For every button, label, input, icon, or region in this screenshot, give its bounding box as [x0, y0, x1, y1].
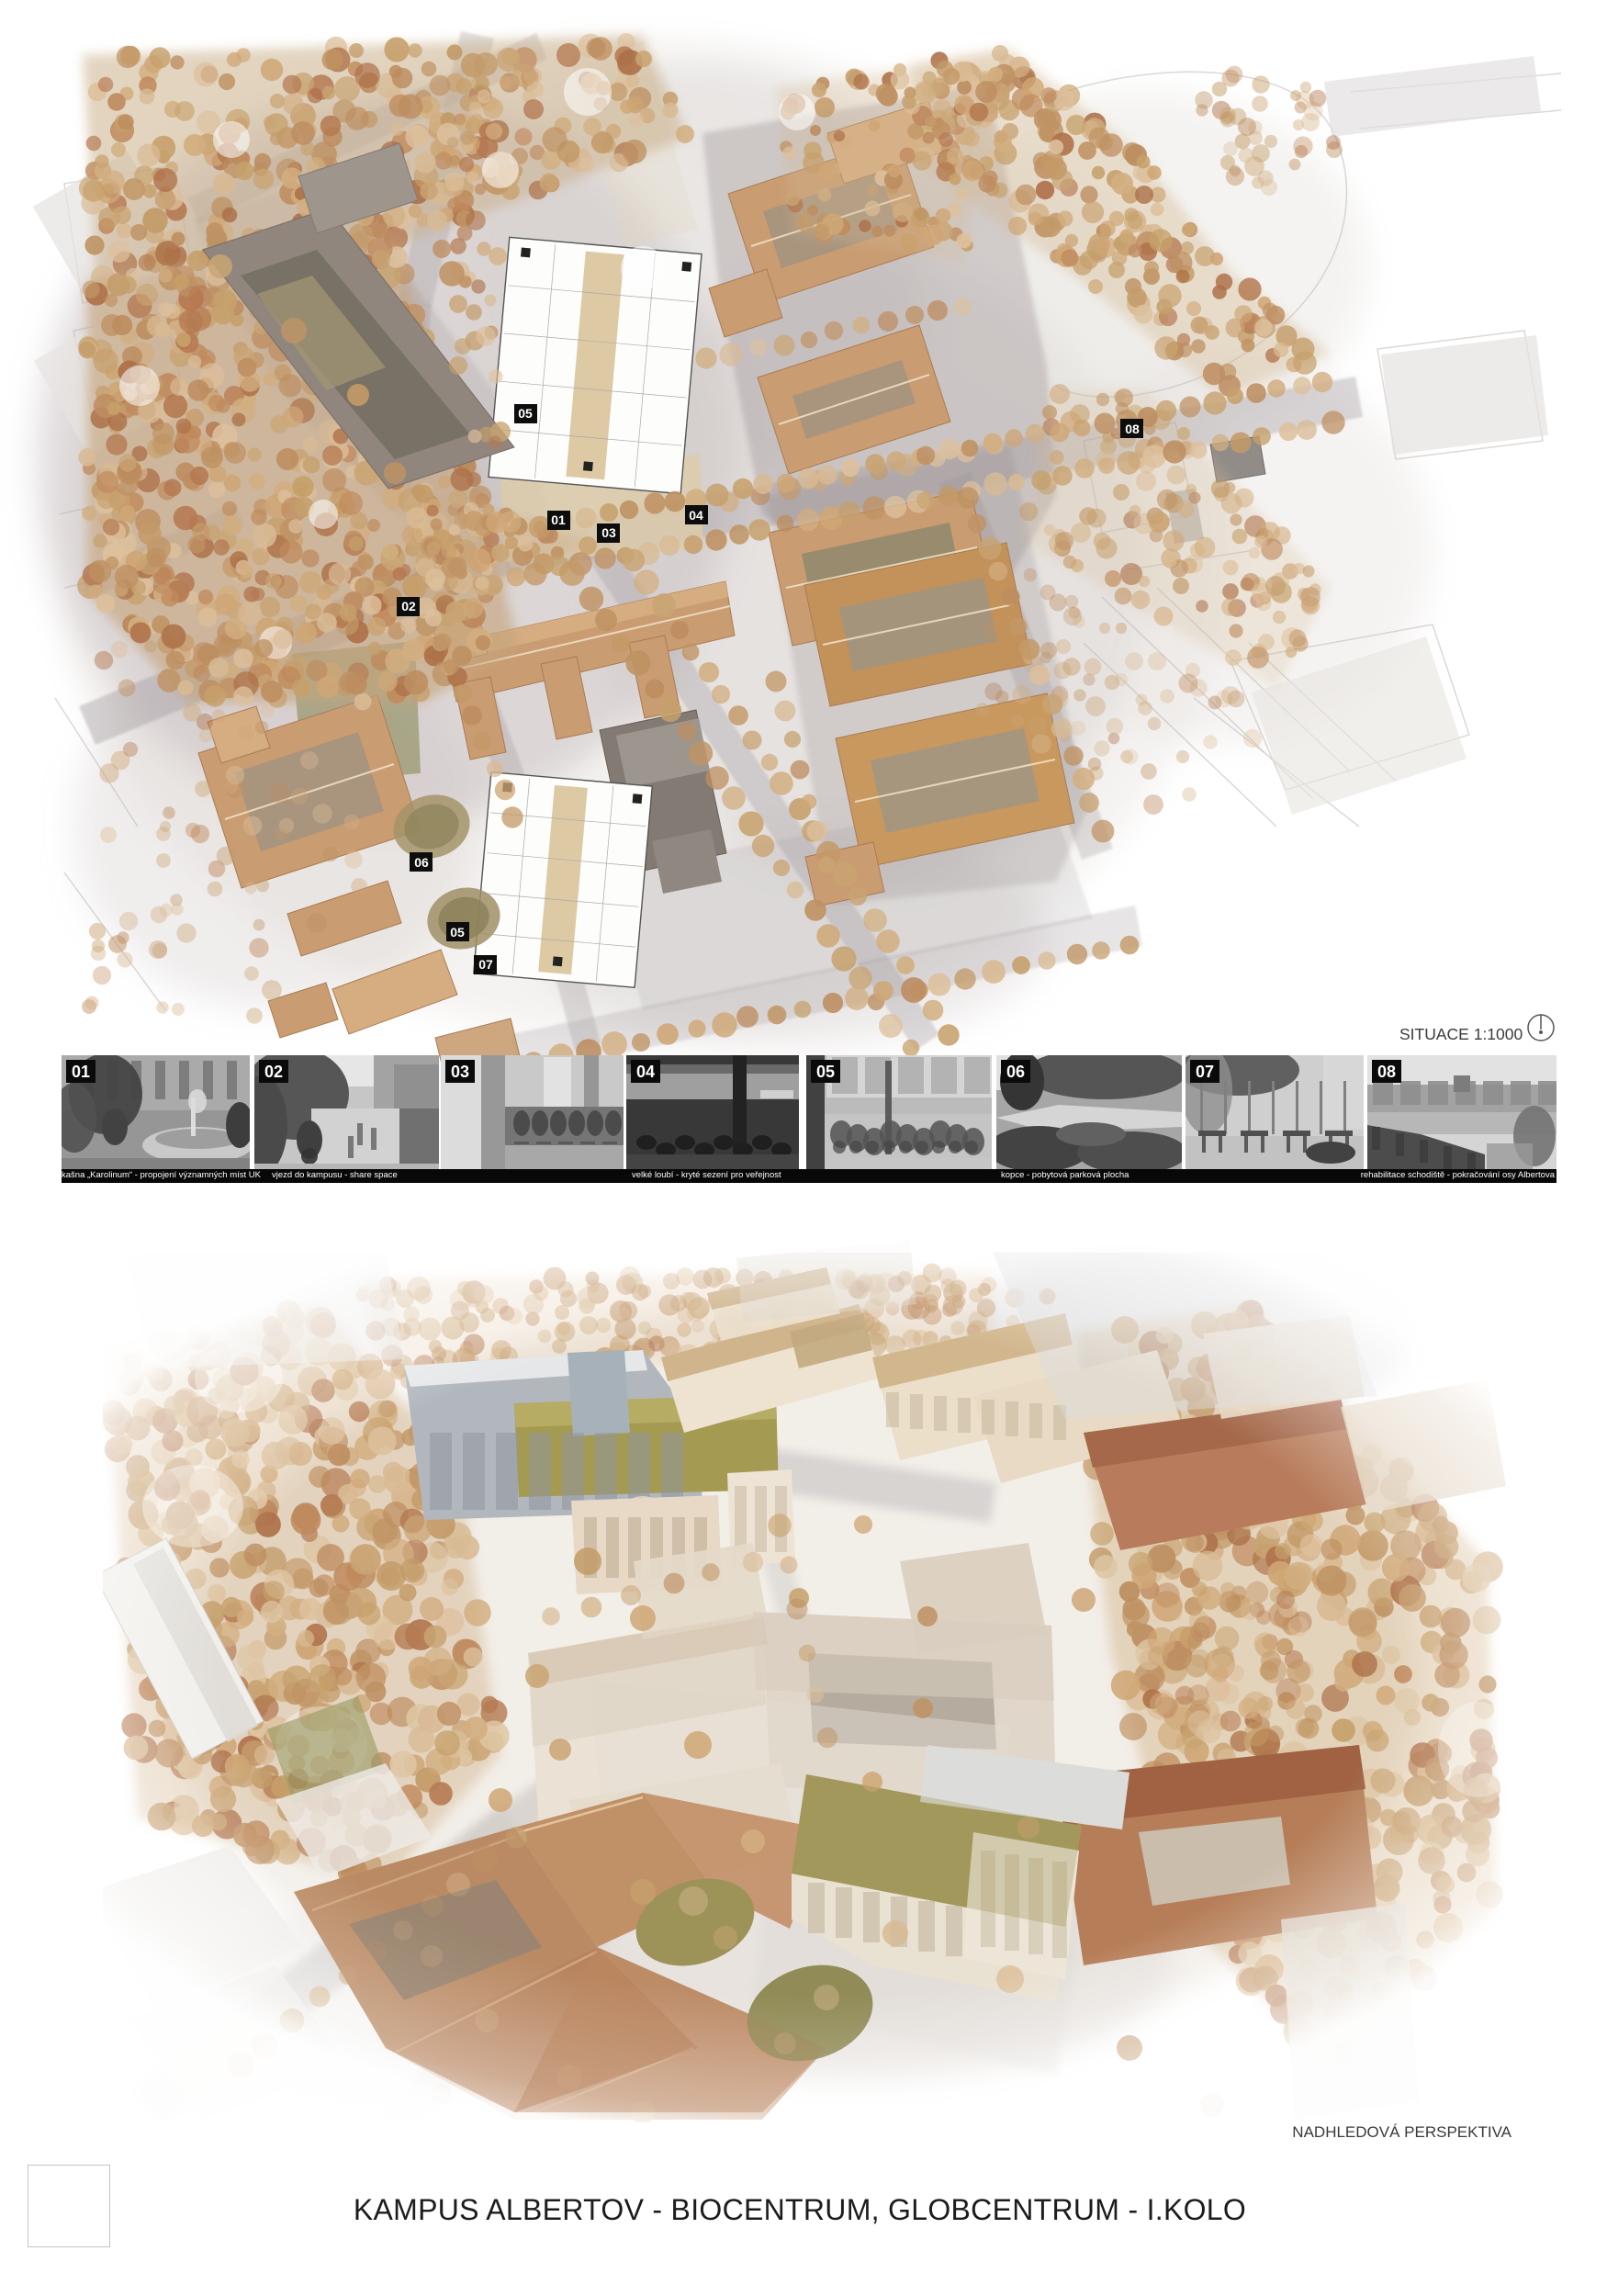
svg-text:02: 02 — [401, 599, 416, 613]
svg-text:08: 08 — [1377, 1063, 1396, 1081]
svg-text:07: 07 — [478, 957, 493, 972]
svg-text:SITUACE 1:1000: SITUACE 1:1000 — [1399, 1025, 1523, 1043]
svg-text:05: 05 — [816, 1063, 835, 1081]
svg-text:07: 07 — [1196, 1063, 1214, 1081]
svg-text:04: 04 — [636, 1063, 655, 1081]
svg-text:04: 04 — [689, 508, 703, 523]
svg-text:03: 03 — [601, 525, 616, 540]
svg-text:05: 05 — [450, 925, 465, 940]
svg-text:01: 01 — [72, 1063, 90, 1081]
svg-text:02: 02 — [264, 1063, 283, 1081]
svg-text:01: 01 — [551, 512, 566, 527]
svg-text:06: 06 — [1006, 1063, 1025, 1081]
svg-text:05: 05 — [518, 406, 533, 421]
svg-text:08: 08 — [1125, 422, 1140, 436]
svg-text:06: 06 — [414, 855, 429, 870]
svg-text:03: 03 — [451, 1063, 469, 1081]
